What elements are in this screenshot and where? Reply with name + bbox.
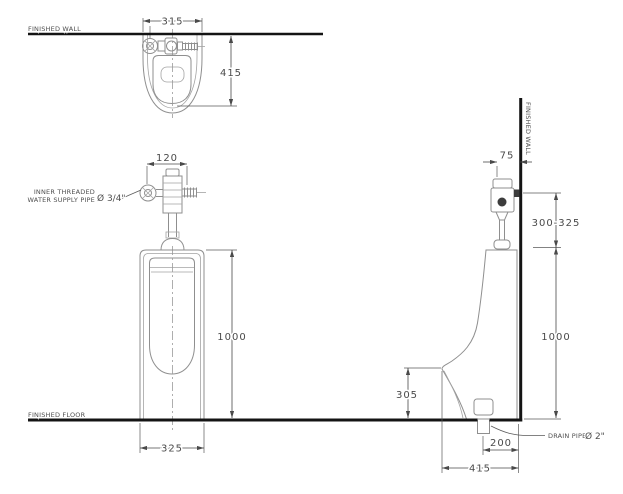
dim-side-supply-range: 300-325 [532, 218, 581, 229]
dim-side-depth: 415 [469, 464, 491, 475]
dim-top-depth: 415 [220, 68, 242, 79]
finished-floor-label: FINISHED FLOOR [28, 411, 86, 419]
supply-size-label: Ø 3/4" [97, 193, 126, 204]
urinal-installation-drawing: 315 415 120 1000 325 75 300-325 1000 305… [0, 0, 623, 494]
dim-top-width: 315 [161, 17, 183, 28]
dim-side-valve-to-wall: 75 [500, 151, 515, 162]
dim-side-height: 1000 [541, 332, 570, 343]
dim-front-height: 1000 [217, 332, 246, 343]
valve-button-icon [498, 198, 507, 207]
finished-wall-label-top: FINISHED WALL [28, 25, 81, 33]
dim-front-valve-offset: 120 [156, 153, 178, 164]
dim-front-width: 325 [161, 444, 183, 455]
dim-side-drain-offset: 200 [490, 438, 512, 449]
drain-size-label: Ø 2" [585, 431, 605, 442]
supply-note-line2: WATER SUPPLY PIPE [28, 196, 95, 204]
drawing-canvas: 315 415 120 1000 325 75 300-325 1000 305… [0, 0, 623, 494]
supply-note-line1: INNER THREADED [34, 188, 95, 196]
dim-side-lip-height: 305 [396, 390, 418, 401]
supply-wall-connector [514, 190, 520, 198]
drain-note-label: DRAIN PIPE [548, 432, 586, 440]
finished-wall-label-side: FINISHED WALL [524, 102, 532, 155]
